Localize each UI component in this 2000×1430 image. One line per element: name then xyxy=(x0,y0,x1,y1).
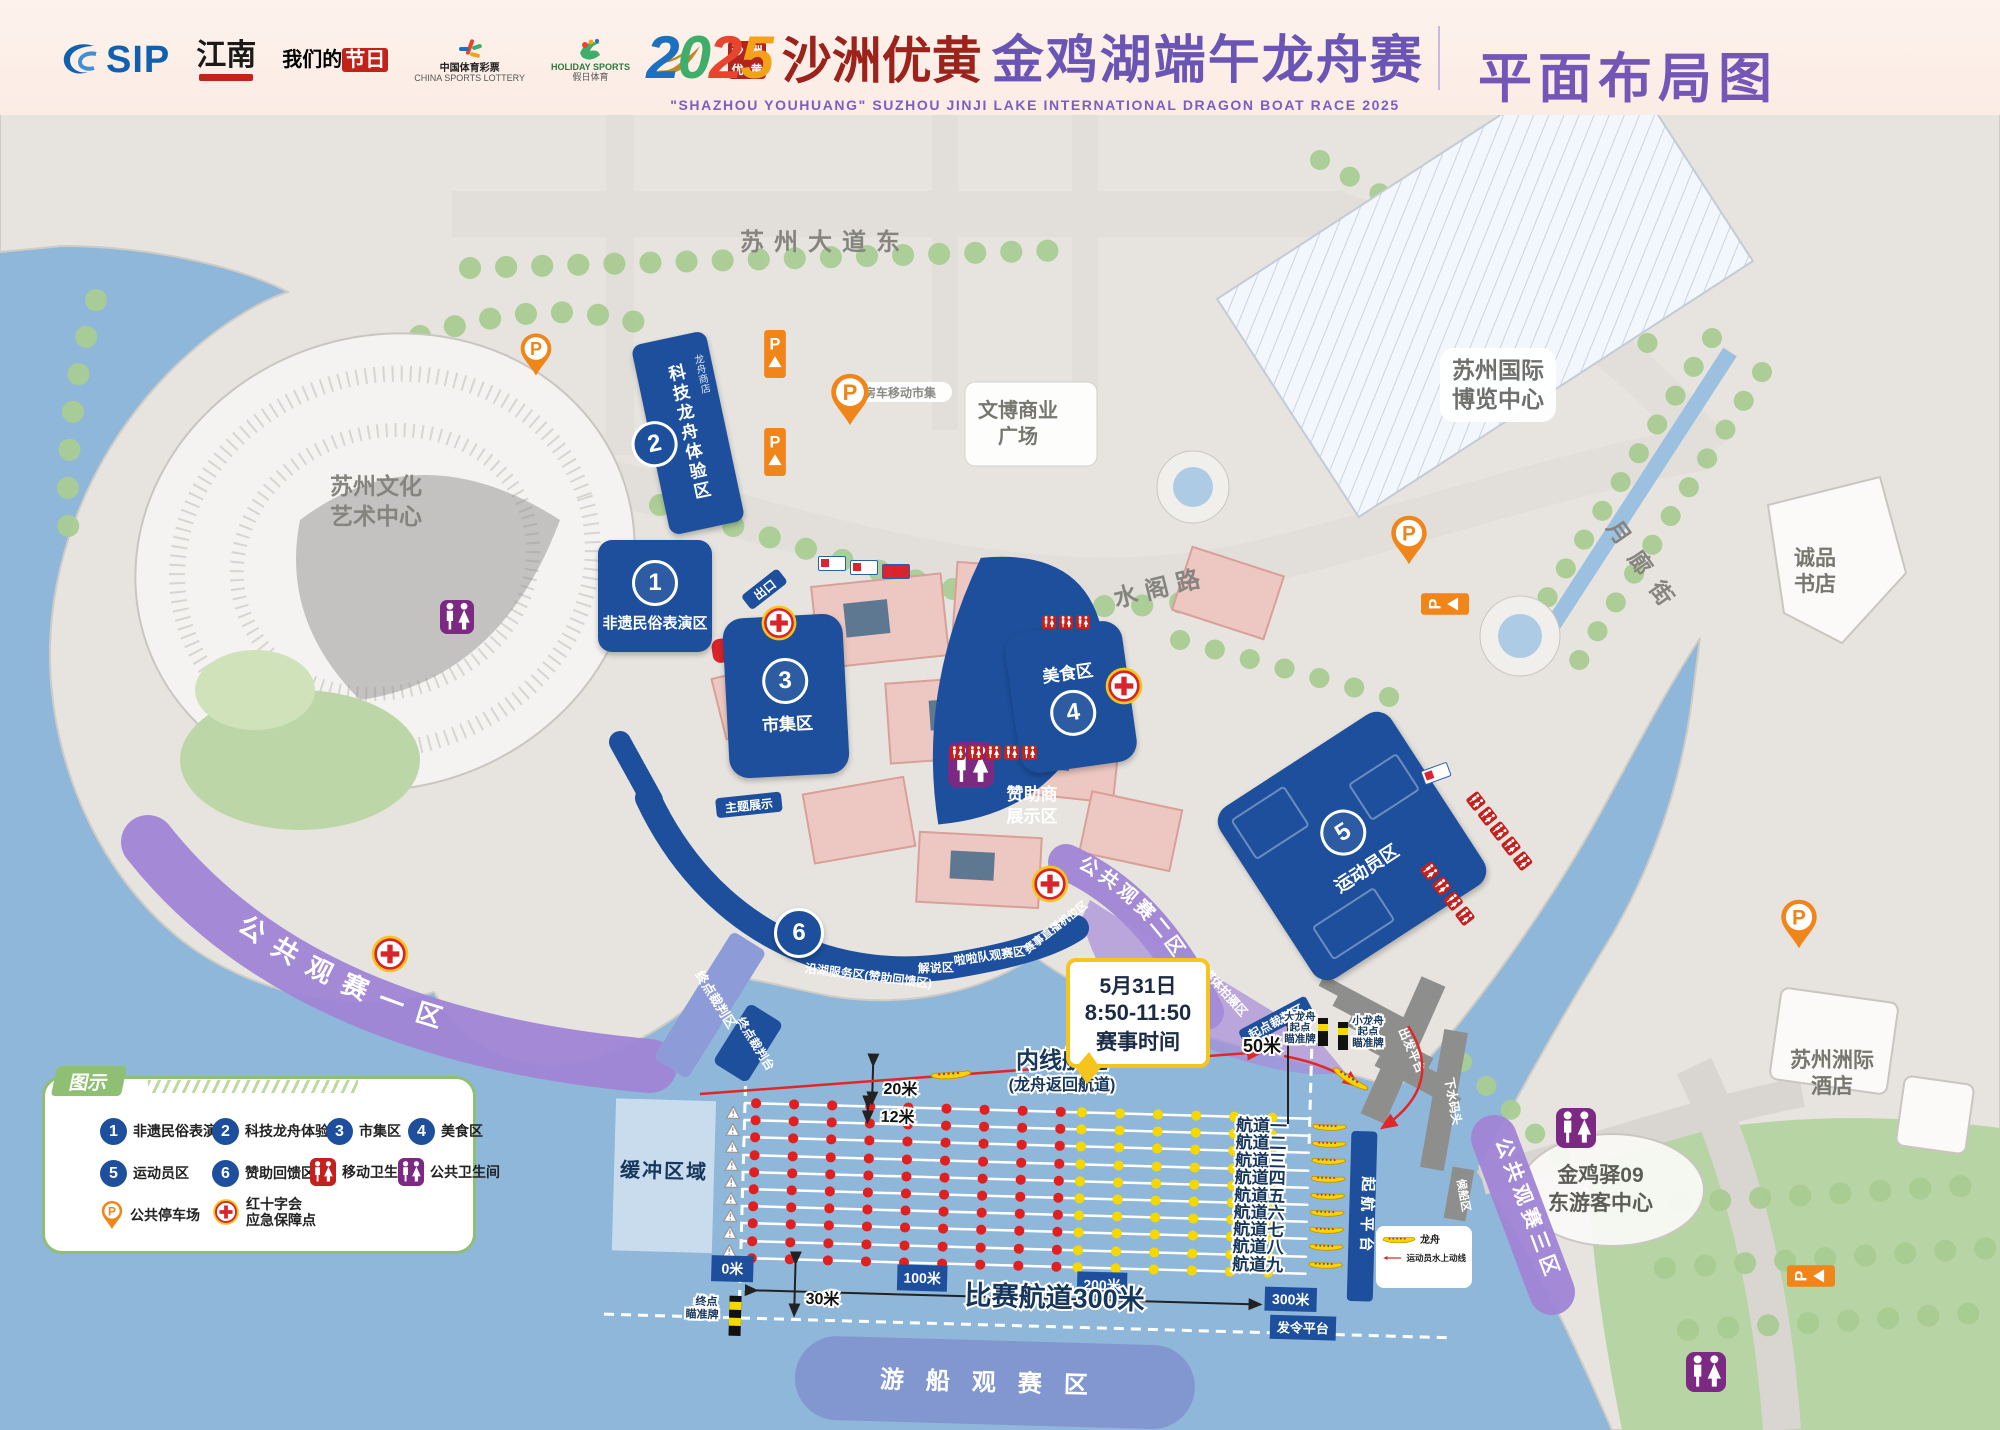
arts-center-label: 苏州文化艺术中心 xyxy=(330,472,422,532)
event-title: 2025 沙洲优黄 金鸡湖端午龙舟赛 "SHAZHOU YOUHUANG" SU… xyxy=(655,18,1415,113)
dragon-boat-race-layout-map: P P xyxy=(0,0,2000,1430)
legend-item-3: 3市集区 xyxy=(326,1118,401,1145)
parking-arrow-sign-icon xyxy=(1787,1265,1835,1287)
svg-text:瞄准牌: 瞄准牌 xyxy=(1284,1032,1316,1045)
wenbo-plaza-label: 文博商业广场 xyxy=(978,398,1058,450)
boat-viewing-band: 游船观赛区 xyxy=(794,1335,1196,1430)
d30-label: 30米 xyxy=(805,1289,840,1309)
legend-title: 图示 xyxy=(51,1066,127,1096)
page-header: SIP 江南 我们的节日 中国体育彩票 CHINA SPORTS LOTTERY xyxy=(0,0,2000,115)
wc-red-icon xyxy=(310,1158,336,1186)
redcross-point-icon xyxy=(760,604,798,642)
svg-text:瞄准牌: 瞄准牌 xyxy=(685,1306,718,1321)
legend-item-parking: 公共停车场 xyxy=(100,1200,200,1230)
svg-text:0米: 0米 xyxy=(721,1260,744,1277)
sip-logo: SIP xyxy=(58,38,170,82)
jiangnan-logo: 江南 xyxy=(196,39,256,81)
svg-text:100米: 100米 xyxy=(903,1269,942,1286)
redcross-point-icon xyxy=(370,934,410,974)
visitor-center-label: 金鸡驿09东游客中心 xyxy=(1548,1162,1653,1219)
legend-item-6: 6赞助回馈区 xyxy=(212,1160,315,1187)
red-cross-icon xyxy=(212,1198,240,1226)
water-route-legend: 龙舟 运动员水上动线 xyxy=(1376,1226,1472,1288)
public-toilet-icon xyxy=(1556,1108,1596,1148)
zone-6-sponsor-return: 6 xyxy=(774,908,824,958)
mobile-toilet-row xyxy=(1042,614,1090,630)
road-suzhou-avenue-east: 苏州大道东 xyxy=(740,222,910,257)
title-script: 沙洲优黄 xyxy=(782,21,982,93)
lottery-icon xyxy=(455,37,485,63)
support-vehicle-icon xyxy=(850,560,878,575)
legend-item-public-toilet: 公共卫生间 xyxy=(398,1158,500,1186)
parking-pin-icon xyxy=(828,372,872,427)
festival-logo: 我们的节日 xyxy=(282,49,388,71)
parking-arrow-sign-icon xyxy=(1421,593,1469,615)
d12-label: 12米 xyxy=(881,1107,916,1127)
legend-item-2: 2科技龙舟体验区 xyxy=(212,1118,343,1145)
svg-text:发令平台: 发令平台 xyxy=(1276,1320,1329,1336)
parking-pin-icon xyxy=(100,1200,124,1230)
wc-purple-icon xyxy=(398,1158,424,1186)
holiday-sports-icon xyxy=(576,37,604,63)
svg-text:赞助商: 赞助商 xyxy=(1006,784,1058,804)
public-toilet-icon xyxy=(440,600,474,634)
total-length-label: 比赛航道300米 xyxy=(964,1279,1145,1315)
parking-arrow-sign-icon xyxy=(764,330,786,378)
fire-truck-icon xyxy=(882,564,910,579)
ambulance-icon xyxy=(818,556,846,571)
title-subtitle-en: "SHAZHOU YOUHUANG" SUZHOU JINJI LAKE INT… xyxy=(655,97,1415,113)
legend-item-4: 4美食区 xyxy=(408,1118,483,1145)
mobile-toilet-row xyxy=(950,744,1037,761)
svg-text:300米: 300米 xyxy=(1272,1291,1311,1308)
svg-text:展示区: 展示区 xyxy=(1007,807,1058,826)
event-time-callout: 5月31日 8:50-11:50 赛事时间 xyxy=(1066,958,1210,1068)
title-main: 金鸡湖端午龙舟赛 xyxy=(992,18,1424,93)
parking-pin-icon xyxy=(518,332,554,377)
expo-center-label: 苏州国际博览中心 xyxy=(1440,348,1556,422)
svg-text:(龙舟返回航道): (龙舟返回航道) xyxy=(1009,1075,1116,1094)
zone-1-heritage-performance: 1 非遗民俗表演区 xyxy=(598,540,712,652)
waterfront-commentary-label: 解说区 xyxy=(918,959,955,975)
eslite-label: 诚品书店 xyxy=(1782,538,1848,607)
sports-lottery-logo: 中国体育彩票 CHINA SPORTS LOTTERY xyxy=(414,37,525,84)
title-year: 2025 xyxy=(646,23,772,92)
redcross-point-icon xyxy=(1104,666,1144,706)
hotel-label: 苏州洲际酒店 xyxy=(1778,1040,1886,1109)
buffer-zone-label: 缓冲区域 xyxy=(620,1158,709,1184)
holiday-sports-logo: HOLIDAY SPORTS 假日体育 xyxy=(551,37,630,83)
legend-item-5: 5运动员区 xyxy=(100,1160,189,1187)
d20-label: 20米 xyxy=(883,1079,918,1099)
svg-text:瞄准牌: 瞄准牌 xyxy=(1352,1036,1384,1049)
zone-2-sub: 龙舟商店 xyxy=(689,353,712,395)
legend-item-redcross: 红十字会应急保障点 xyxy=(212,1196,316,1228)
redcross-point-icon xyxy=(1030,864,1070,904)
svg-text:终点: 终点 xyxy=(695,1294,717,1309)
parking-pin-icon xyxy=(1388,514,1430,566)
legend-item-mobile-toilet: 移动卫生间 xyxy=(310,1158,412,1186)
parking-pin-icon xyxy=(1778,898,1820,950)
sip-swoosh-icon xyxy=(58,38,102,82)
legend-hatch-decoration xyxy=(148,1080,358,1093)
rv-market-tag: 房车移动市集 xyxy=(864,385,937,400)
dragon-boat-icon xyxy=(1382,1234,1416,1244)
parking-arrow-sign-icon xyxy=(764,428,786,476)
public-toilet-icon xyxy=(1686,1352,1726,1392)
page-title: 平面布局图 xyxy=(1478,34,1778,113)
lane-labels: 航道一 航道二 航道三 航道四 航道五 航道六 航道七 航道八 航道九 xyxy=(1232,1115,1288,1275)
svg-text:航道九: 航道九 xyxy=(1232,1254,1284,1275)
header-divider xyxy=(1438,26,1440,90)
svg-text:航道二: 航道二 xyxy=(1235,1132,1287,1153)
start-platform-label: 起航平台 xyxy=(1357,1175,1377,1256)
svg-text:航道四: 航道四 xyxy=(1234,1167,1286,1188)
svg-text:50米: 50米 xyxy=(1243,1035,1282,1056)
route-arrow-icon xyxy=(1382,1254,1402,1262)
